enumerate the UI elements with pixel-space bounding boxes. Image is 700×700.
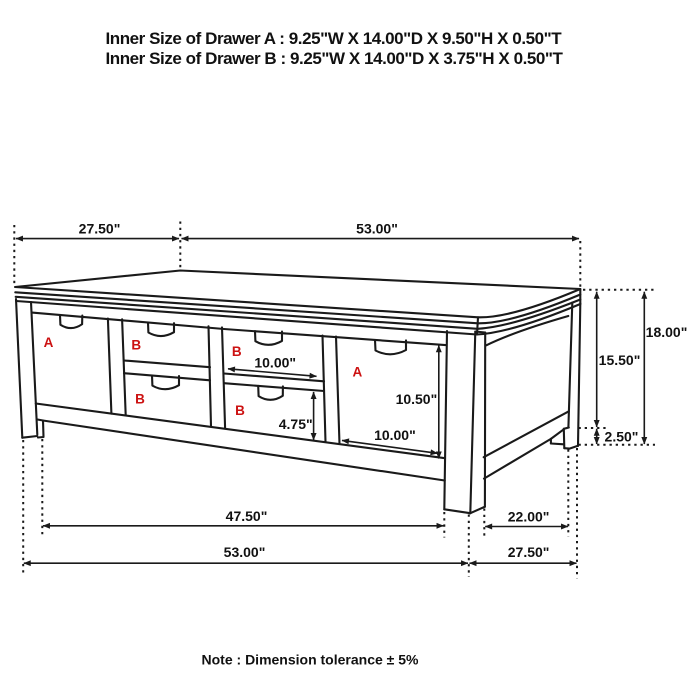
svg-text:10.00": 10.00" — [254, 355, 296, 371]
svg-text:B: B — [135, 392, 145, 407]
svg-text:18.00": 18.00" — [646, 324, 688, 340]
svg-text:10.00": 10.00" — [374, 427, 416, 443]
svg-text:Inner Size of Drawer A : 9.25": Inner Size of Drawer A : 9.25"W X 14.00"… — [106, 29, 563, 48]
svg-text:27.50": 27.50" — [508, 544, 550, 560]
svg-text:15.50": 15.50" — [599, 352, 641, 368]
svg-text:2.50": 2.50" — [605, 428, 639, 444]
svg-text:Inner Size of Drawer B : 9.25": Inner Size of Drawer B : 9.25"W X 14.00"… — [106, 49, 564, 68]
svg-text:53.00": 53.00" — [224, 544, 266, 560]
svg-text:B: B — [235, 403, 245, 418]
svg-text:10.50": 10.50" — [396, 391, 438, 407]
svg-text:A: A — [44, 335, 54, 350]
svg-text:47.50": 47.50" — [226, 508, 268, 524]
svg-text:Note : Dimension tolerance ± 5: Note : Dimension tolerance ± 5% — [202, 652, 420, 668]
svg-text:A: A — [353, 365, 363, 380]
svg-text:22.00": 22.00" — [508, 508, 550, 524]
svg-text:4.75": 4.75" — [279, 416, 313, 432]
svg-text:27.50": 27.50" — [79, 221, 121, 237]
svg-text:B: B — [232, 344, 242, 359]
svg-text:B: B — [131, 337, 141, 352]
svg-text:53.00": 53.00" — [356, 221, 398, 237]
